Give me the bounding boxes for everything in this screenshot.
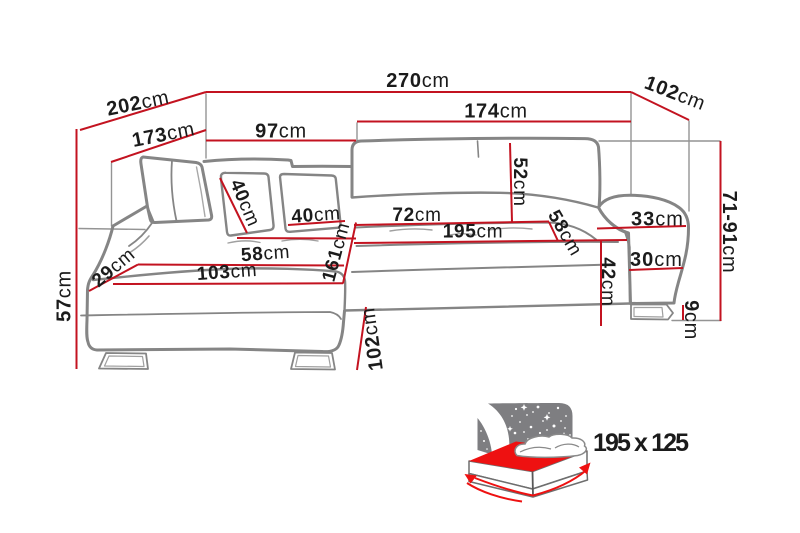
svg-text:71-91cm: 71-91cm xyxy=(718,191,740,274)
svg-text:30cm: 30cm xyxy=(630,249,683,271)
svg-text:72cm: 72cm xyxy=(392,205,441,226)
svg-text:40cm: 40cm xyxy=(291,203,342,227)
svg-text:52cm: 52cm xyxy=(510,157,531,206)
svg-text:270cm: 270cm xyxy=(386,70,450,92)
svg-text:42cm: 42cm xyxy=(598,257,619,306)
svg-text:195 x 125: 195 x 125 xyxy=(593,429,689,457)
svg-text:174cm: 174cm xyxy=(464,101,528,123)
svg-text:103cm: 103cm xyxy=(196,259,258,284)
svg-text:33cm: 33cm xyxy=(631,209,684,231)
svg-text:57cm: 57cm xyxy=(54,270,76,322)
svg-text:9cm: 9cm xyxy=(680,300,702,340)
svg-text:195cm: 195cm xyxy=(443,221,504,242)
svg-text:97cm: 97cm xyxy=(255,121,307,143)
